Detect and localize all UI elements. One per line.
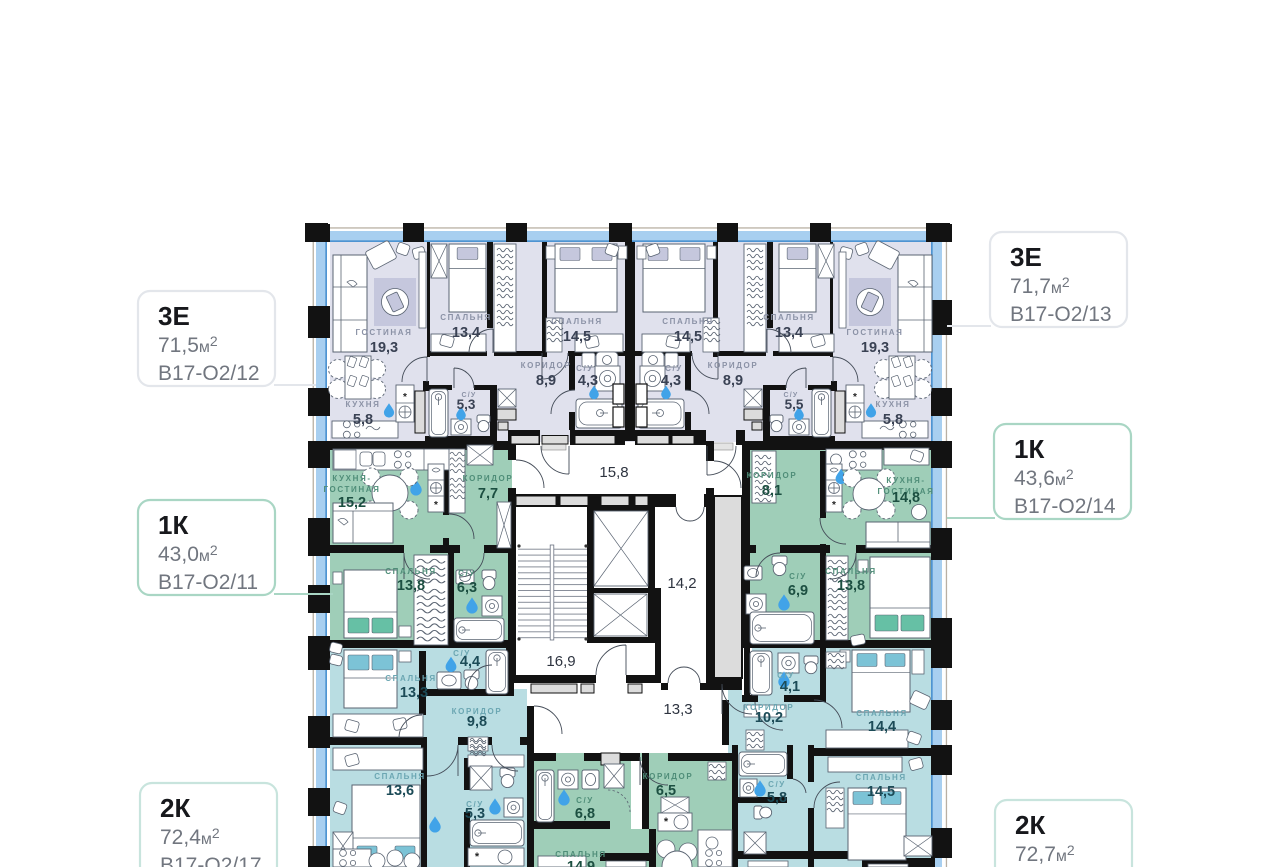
- svg-text:6,5: 6,5: [656, 783, 676, 799]
- svg-text:43,6м2: 43,6м2: [1014, 466, 1074, 490]
- svg-text:В17-О2/13: В17-О2/13: [1010, 303, 1112, 326]
- svg-text:КУХНЯ: КУХНЯ: [346, 400, 381, 409]
- svg-text:КУХНЯ: КУХНЯ: [876, 400, 911, 409]
- svg-text:4,1: 4,1: [780, 679, 800, 695]
- svg-text:13,3: 13,3: [400, 685, 428, 701]
- svg-text:*: *: [664, 816, 669, 828]
- svg-text:71,7м2: 71,7м2: [1010, 274, 1070, 298]
- svg-text:71,5м2: 71,5м2: [158, 333, 218, 357]
- svg-text:6,8: 6,8: [575, 806, 595, 822]
- svg-text:С/У: С/У: [789, 572, 807, 581]
- svg-text:СПАЛЬНЯ: СПАЛЬНЯ: [551, 317, 603, 326]
- svg-text:5,8: 5,8: [353, 412, 373, 428]
- svg-text:19,3: 19,3: [861, 340, 889, 356]
- svg-text:*: *: [403, 392, 407, 403]
- svg-text:КОРИДОР: КОРИДОР: [747, 471, 798, 480]
- svg-text:8,1: 8,1: [762, 483, 782, 499]
- svg-text:КОРИДОР: КОРИДОР: [463, 474, 514, 483]
- svg-text:9,8: 9,8: [467, 714, 487, 730]
- svg-text:*: *: [434, 500, 438, 511]
- svg-text:14,9: 14,9: [567, 859, 595, 867]
- svg-text:В17-О2/17: В17-О2/17: [160, 854, 262, 867]
- svg-text:ГОСТИНАЯ: ГОСТИНАЯ: [324, 485, 381, 494]
- svg-text:5,8: 5,8: [883, 412, 903, 428]
- svg-text:ГОСТИНАЯ: ГОСТИНАЯ: [847, 328, 904, 337]
- svg-text:43,0м2: 43,0м2: [158, 542, 218, 566]
- svg-text:СПАЛЬНЯ: СПАЛЬНЯ: [440, 313, 492, 322]
- svg-text:7,7: 7,7: [478, 486, 498, 502]
- svg-text:13,8: 13,8: [397, 578, 425, 594]
- svg-text:1К: 1К: [158, 510, 188, 540]
- svg-text:14,5: 14,5: [674, 329, 702, 345]
- svg-text:С/У: С/У: [576, 364, 594, 373]
- svg-text:В17-О2/11: В17-О2/11: [158, 571, 258, 594]
- svg-text:СПАЛЬНЯ: СПАЛЬНЯ: [385, 674, 437, 683]
- svg-text:4,3: 4,3: [661, 373, 681, 389]
- svg-text:13,4: 13,4: [775, 325, 803, 341]
- svg-text:С/У: С/У: [458, 569, 476, 578]
- svg-text:3Е: 3Е: [1010, 242, 1042, 272]
- svg-text:*: *: [832, 500, 836, 511]
- svg-text:ГОСТИНАЯ: ГОСТИНАЯ: [356, 328, 413, 337]
- svg-text:С/У: С/У: [576, 796, 594, 805]
- svg-text:8,9: 8,9: [723, 373, 743, 389]
- svg-text:КУХНЯ-: КУХНЯ-: [886, 476, 925, 485]
- svg-text:14,5: 14,5: [563, 329, 591, 345]
- svg-text:15,8: 15,8: [599, 464, 628, 481]
- svg-text:14,5: 14,5: [867, 784, 895, 800]
- svg-text:КОРИДОР: КОРИДОР: [643, 772, 694, 781]
- svg-text:72,4м2: 72,4м2: [160, 825, 220, 849]
- svg-text:1К: 1К: [1014, 434, 1044, 464]
- svg-text:14,2: 14,2: [667, 575, 696, 592]
- svg-text:*: *: [853, 392, 857, 403]
- svg-text:8,9: 8,9: [536, 373, 556, 389]
- svg-text:*: *: [475, 851, 480, 863]
- svg-text:4,4: 4,4: [460, 654, 480, 670]
- svg-text:КОРИДОР: КОРИДОР: [708, 361, 759, 370]
- svg-text:14,8: 14,8: [892, 490, 920, 506]
- svg-text:С/У: С/У: [665, 364, 683, 373]
- svg-text:СПАЛЬНЯ: СПАЛЬНЯ: [825, 567, 877, 576]
- svg-text:14,4: 14,4: [868, 719, 896, 735]
- svg-text:5,3: 5,3: [465, 806, 485, 822]
- svg-text:15,2: 15,2: [338, 495, 366, 511]
- svg-text:СПАЛЬНЯ: СПАЛЬНЯ: [555, 850, 607, 859]
- svg-text:В17-О2/14: В17-О2/14: [1014, 495, 1116, 518]
- svg-text:СПАЛЬНЯ: СПАЛЬНЯ: [385, 567, 437, 576]
- svg-text:СПАЛЬНЯ: СПАЛЬНЯ: [855, 773, 907, 782]
- svg-text:С/У: С/У: [768, 780, 786, 789]
- svg-text:13,8: 13,8: [837, 578, 865, 594]
- svg-text:19,3: 19,3: [370, 340, 398, 356]
- svg-text:6,9: 6,9: [788, 583, 808, 599]
- svg-text:3Е: 3Е: [158, 301, 190, 331]
- svg-text:4,3: 4,3: [578, 373, 598, 389]
- svg-text:13,4: 13,4: [452, 325, 480, 341]
- svg-text:5,5: 5,5: [785, 397, 804, 412]
- svg-text:СПАЛЬНЯ: СПАЛЬНЯ: [763, 313, 815, 322]
- svg-text:13,6: 13,6: [386, 783, 414, 799]
- svg-text:СПАЛЬНЯ: СПАЛЬНЯ: [374, 772, 426, 781]
- svg-text:5,3: 5,3: [457, 397, 476, 412]
- svg-text:6,3: 6,3: [457, 580, 477, 596]
- svg-text:2К: 2К: [1015, 810, 1045, 840]
- svg-text:13,3: 13,3: [663, 701, 692, 718]
- svg-text:СПАЛЬНЯ: СПАЛЬНЯ: [856, 709, 908, 718]
- svg-text:10,2: 10,2: [755, 710, 783, 726]
- svg-text:16,9: 16,9: [546, 653, 575, 670]
- svg-text:72,7м2: 72,7м2: [1015, 842, 1075, 866]
- svg-text:КУХНЯ-: КУХНЯ-: [332, 474, 371, 483]
- svg-text:СПАЛЬНЯ: СПАЛЬНЯ: [662, 317, 714, 326]
- svg-text:КОРИДОР: КОРИДОР: [521, 361, 572, 370]
- svg-text:2К: 2К: [160, 793, 190, 823]
- svg-text:5,8: 5,8: [767, 790, 787, 806]
- svg-text:В17-О2/12: В17-О2/12: [158, 362, 260, 385]
